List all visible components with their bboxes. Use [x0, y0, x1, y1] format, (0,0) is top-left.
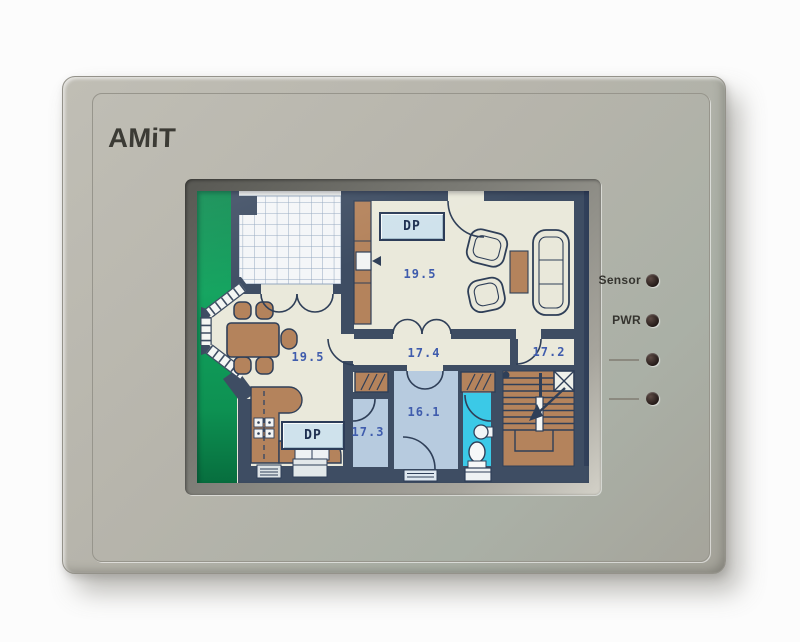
- dp-button-kitchen[interactable]: DP: [281, 421, 345, 450]
- led-blank-label-line: [609, 359, 639, 361]
- staircase: [503, 371, 575, 466]
- radiator: [257, 465, 281, 478]
- dishwasher: [293, 459, 327, 477]
- toilet-base: [468, 461, 486, 468]
- dp-button-living[interactable]: DP: [379, 212, 445, 241]
- temp-study: 17.3: [352, 425, 385, 439]
- dining-table: [227, 323, 279, 357]
- led-label-sensor: Sensor: [561, 273, 641, 287]
- room-bath-floor: [394, 371, 458, 469]
- toilet-bowl: [469, 442, 485, 462]
- temp-bathroom: 16.1: [408, 405, 441, 419]
- washing-machine: [465, 468, 491, 481]
- led-blank-label-line: [609, 398, 639, 400]
- wardrobe-left: [355, 372, 388, 392]
- power-led: [646, 314, 659, 327]
- sensor-led: [646, 274, 659, 287]
- door-threshold: [404, 470, 437, 481]
- temp-living-room: 19.5: [404, 267, 437, 281]
- hmi-panel-device: AMiT: [62, 76, 726, 574]
- temp-hall: 17.4: [408, 346, 441, 360]
- top-light-strip: [239, 191, 341, 196]
- dining-chair: [234, 357, 251, 374]
- touchscreen[interactable]: DP DP 19.5 19.5 17.4 17.2 17.3 16.1: [197, 191, 589, 483]
- wardrobe-right: [461, 372, 495, 392]
- spare-led-2: [646, 392, 659, 405]
- temp-dining-room: 19.5: [292, 350, 325, 364]
- brand-logo: AMiT: [108, 123, 176, 154]
- photo-background: AMiT: [0, 0, 800, 642]
- spare-led-1: [646, 353, 659, 366]
- dining-chair: [281, 329, 297, 349]
- screen-recess: DP DP 19.5 19.5 17.4 17.2 17.3 16.1: [185, 179, 601, 495]
- terrace-tiles: [239, 196, 341, 284]
- wash-basin: [474, 425, 488, 439]
- temp-guest-room: 17.2: [533, 345, 566, 359]
- dining-chair: [256, 357, 273, 374]
- dining-chair: [234, 302, 251, 319]
- coffee-table: [510, 251, 528, 293]
- led-label-pwr: PWR: [561, 313, 641, 327]
